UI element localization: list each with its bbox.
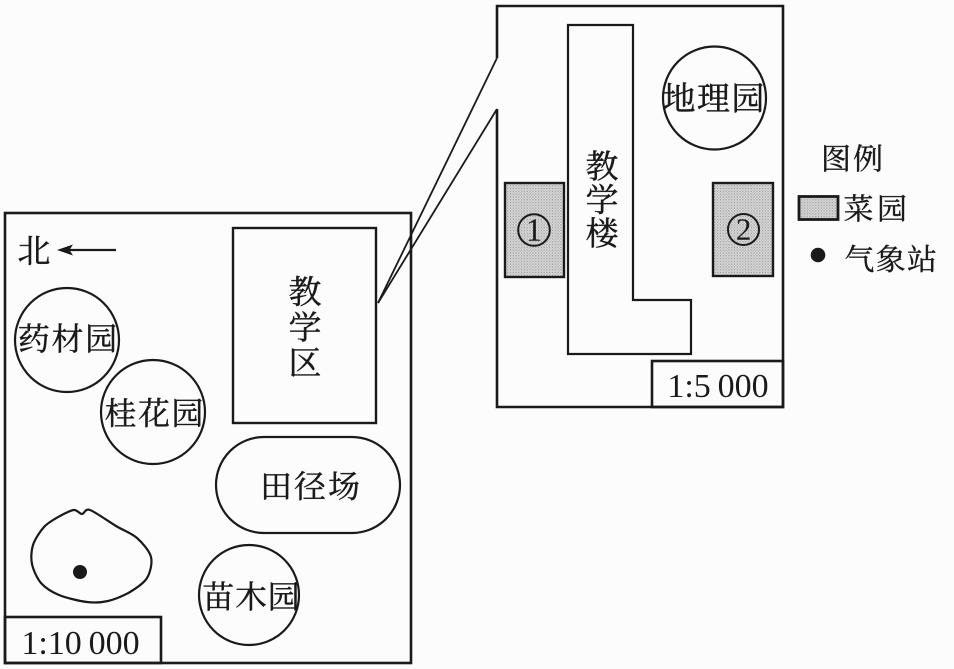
svg-text:1:5 000: 1:5 000 — [667, 368, 768, 405]
svg-text:1:10 000: 1:10 000 — [21, 625, 139, 662]
